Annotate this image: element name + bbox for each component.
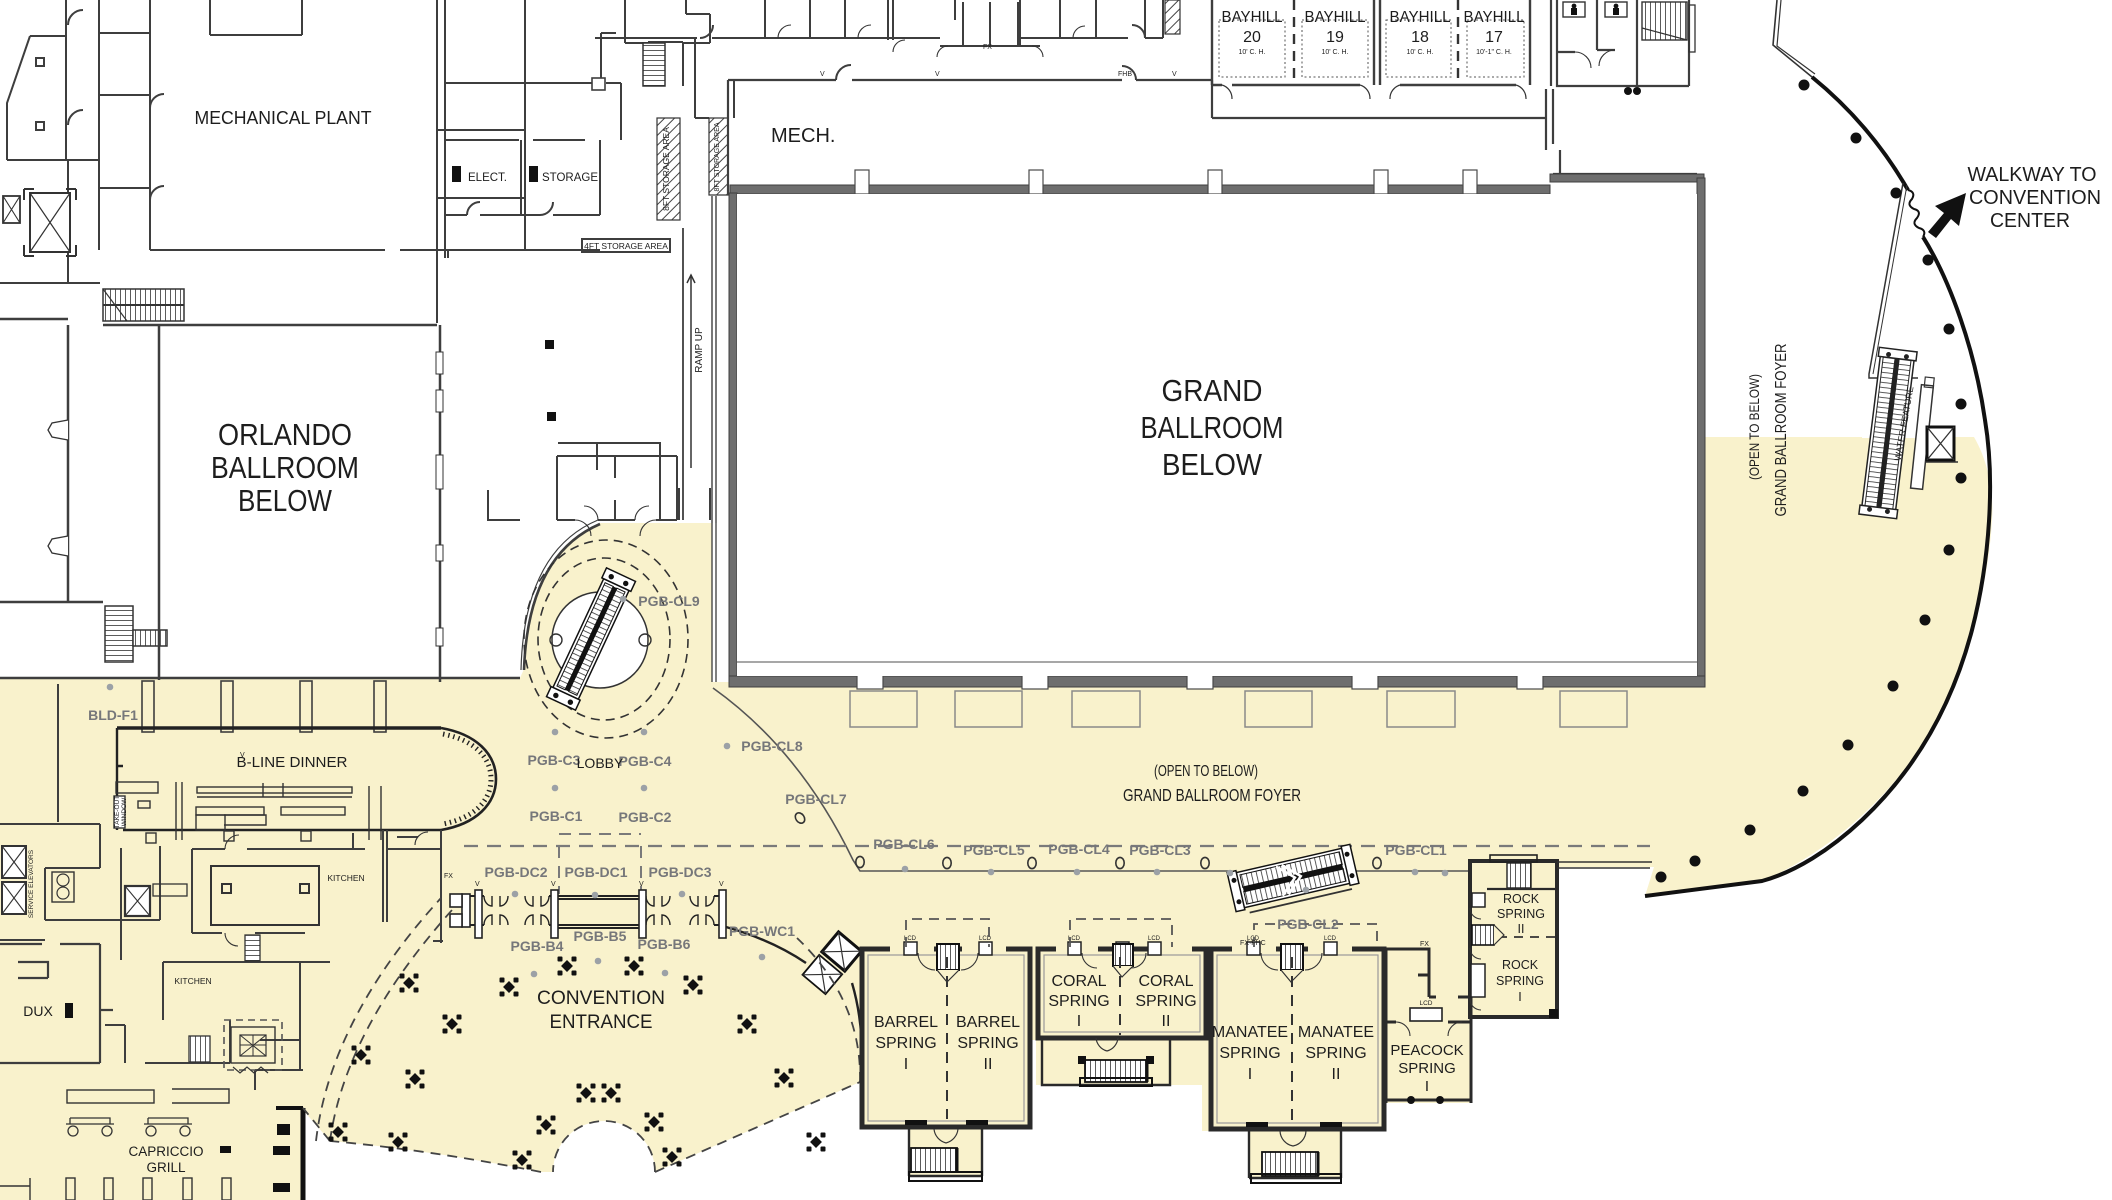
svg-text:WINDOW: WINDOW xyxy=(121,797,128,826)
svg-text:PGB-DC3: PGB-DC3 xyxy=(648,864,711,880)
svg-text:FX: FX xyxy=(1420,941,1429,948)
svg-text:GRAND BALLROOM FOYER: GRAND BALLROOM FOYER xyxy=(1773,344,1790,517)
svg-text:FX: FX xyxy=(444,873,453,880)
svg-text:GRAND BALLROOM FOYER: GRAND BALLROOM FOYER xyxy=(1123,785,1301,805)
svg-text:PGB-CL7: PGB-CL7 xyxy=(785,791,847,807)
svg-text:V: V xyxy=(1172,71,1177,78)
svg-text:SPRING: SPRING xyxy=(1305,1045,1366,1062)
svg-text:PGB-WC1: PGB-WC1 xyxy=(729,923,795,939)
svg-text:I: I xyxy=(1248,1066,1252,1083)
svg-text:MANATEE: MANATEE xyxy=(1298,1024,1374,1041)
svg-text:10' C. H.: 10' C. H. xyxy=(1406,49,1433,56)
svg-text:SPRING: SPRING xyxy=(875,1035,936,1052)
svg-text:PGB-CL2: PGB-CL2 xyxy=(1277,916,1339,932)
svg-text:CONVENTION: CONVENTION xyxy=(1969,187,2101,209)
svg-text:CORAL: CORAL xyxy=(1051,973,1106,990)
svg-text:BARREL: BARREL xyxy=(874,1014,938,1031)
svg-text:LCD: LCD xyxy=(1419,1000,1432,1007)
svg-text:PGB-CL9: PGB-CL9 xyxy=(638,593,700,609)
svg-text:BALLROOM: BALLROOM xyxy=(1141,410,1284,445)
svg-text:MANATEE: MANATEE xyxy=(1212,1024,1288,1041)
svg-text:(OPEN TO BELOW): (OPEN TO BELOW) xyxy=(1154,763,1258,780)
svg-text:CENTER: CENTER xyxy=(1990,210,2070,232)
svg-text:LCD: LCD xyxy=(1148,936,1161,942)
svg-text:II: II xyxy=(1162,1013,1171,1030)
svg-text:V: V xyxy=(551,881,556,888)
svg-text:PGB-CL6: PGB-CL6 xyxy=(873,836,935,852)
svg-text:LOBBY: LOBBY xyxy=(577,755,624,771)
svg-text:CORAL: CORAL xyxy=(1138,973,1193,990)
svg-text:ROCK: ROCK xyxy=(1502,958,1539,972)
svg-text:SPRING: SPRING xyxy=(1135,993,1196,1010)
svg-text:SPRING: SPRING xyxy=(1496,974,1544,988)
svg-text:(OPEN TO BELOW): (OPEN TO BELOW) xyxy=(1746,374,1762,480)
svg-text:CAPRICCIO: CAPRICCIO xyxy=(128,1144,203,1159)
svg-text:V: V xyxy=(719,881,724,888)
svg-text:17: 17 xyxy=(1485,29,1503,46)
svg-text:PGB-DC2: PGB-DC2 xyxy=(484,864,547,880)
svg-text:10'-1" C. H.: 10'-1" C. H. xyxy=(1476,49,1512,56)
svg-text:RAMP UP: RAMP UP xyxy=(694,327,705,373)
svg-text:BAYHILL: BAYHILL xyxy=(1305,9,1366,26)
svg-text:V: V xyxy=(240,752,245,759)
svg-text:BAYHILL: BAYHILL xyxy=(1390,9,1451,26)
svg-text:20: 20 xyxy=(1243,29,1261,46)
svg-text:PGB-CL5: PGB-CL5 xyxy=(963,842,1025,858)
svg-text:II: II xyxy=(1518,922,1525,936)
svg-text:PGB-B4: PGB-B4 xyxy=(511,938,564,954)
svg-text:I: I xyxy=(904,1056,908,1073)
svg-text:ENTRANCE: ENTRANCE xyxy=(550,1012,653,1033)
svg-text:DUX: DUX xyxy=(23,1003,53,1019)
svg-text:ORLANDO: ORLANDO xyxy=(218,417,352,452)
svg-text:18: 18 xyxy=(1411,29,1429,46)
svg-text:II: II xyxy=(1332,1066,1341,1083)
svg-text:PGB-CL1: PGB-CL1 xyxy=(1385,842,1447,858)
svg-text:I: I xyxy=(1425,1078,1429,1095)
svg-text:PEACOCK: PEACOCK xyxy=(1390,1042,1463,1059)
svg-text:SPRING: SPRING xyxy=(1219,1045,1280,1062)
svg-text:19: 19 xyxy=(1326,29,1344,46)
svg-text:V: V xyxy=(475,881,480,888)
svg-text:8FT STORAGE AREA: 8FT STORAGE AREA xyxy=(714,122,721,191)
svg-text:BELOW: BELOW xyxy=(238,483,333,518)
svg-text:SPRING: SPRING xyxy=(1048,993,1109,1010)
svg-text:TAKE-OUT: TAKE-OUT xyxy=(114,796,121,828)
svg-text:10' C. H.: 10' C. H. xyxy=(1238,49,1265,56)
svg-text:V: V xyxy=(820,71,825,78)
svg-text:BALLROOM: BALLROOM xyxy=(211,450,359,485)
svg-text:PGB-C4: PGB-C4 xyxy=(619,753,672,769)
svg-text:KITCHEN: KITCHEN xyxy=(174,976,211,986)
svg-text:V: V xyxy=(935,71,940,78)
svg-text:PGB-C3: PGB-C3 xyxy=(528,752,581,768)
svg-text:B-LINE DINNER: B-LINE DINNER xyxy=(237,754,348,771)
svg-text:MECH.: MECH. xyxy=(771,125,835,147)
svg-text:PGB-B5: PGB-B5 xyxy=(574,928,627,944)
svg-text:GRAND: GRAND xyxy=(1162,373,1263,408)
svg-text:V: V xyxy=(639,881,644,888)
svg-text:FX: FX xyxy=(983,44,992,51)
svg-text:PGB-CL3: PGB-CL3 xyxy=(1129,842,1191,858)
svg-text:ROCK: ROCK xyxy=(1503,892,1540,906)
svg-text:BELOW: BELOW xyxy=(1162,447,1263,482)
svg-text:PGB-CL4: PGB-CL4 xyxy=(1048,841,1110,857)
svg-text:CONVENTION: CONVENTION xyxy=(537,988,665,1009)
svg-text:PGB-C2: PGB-C2 xyxy=(619,809,672,825)
svg-text:STORAGE: STORAGE xyxy=(542,172,598,184)
svg-text:SPRING: SPRING xyxy=(1398,1060,1456,1077)
svg-text:II: II xyxy=(984,1056,993,1073)
svg-text:PGB-DC1: PGB-DC1 xyxy=(564,864,627,880)
svg-text:SPRING: SPRING xyxy=(957,1035,1018,1052)
svg-text:I: I xyxy=(1077,1013,1081,1030)
svg-text:PGB-CL8: PGB-CL8 xyxy=(741,738,803,754)
svg-text:LCD: LCD xyxy=(1324,936,1337,942)
svg-text:WALKWAY TO: WALKWAY TO xyxy=(1968,164,2097,186)
svg-text:FHB: FHB xyxy=(1118,71,1132,78)
svg-text:10' C. H.: 10' C. H. xyxy=(1321,49,1348,56)
svg-text:PGB-C1: PGB-C1 xyxy=(530,808,583,824)
svg-text:SPRING: SPRING xyxy=(1497,907,1545,921)
svg-text:ELECT.: ELECT. xyxy=(468,172,507,184)
svg-text:BAYHILL: BAYHILL xyxy=(1464,9,1525,26)
svg-text:BLD-F1: BLD-F1 xyxy=(88,707,138,723)
svg-text:FX·FHC: FX·FHC xyxy=(1240,940,1266,947)
svg-text:PGB-B6: PGB-B6 xyxy=(638,936,691,952)
svg-text:KITCHEN: KITCHEN xyxy=(327,873,364,883)
svg-text:I: I xyxy=(1518,990,1521,1004)
svg-text:GRILL: GRILL xyxy=(146,1160,186,1175)
svg-text:BARREL: BARREL xyxy=(956,1014,1020,1031)
svg-text:SERVICE ELEVATORS: SERVICE ELEVATORS xyxy=(28,849,35,918)
svg-text:MECHANICAL PLANT: MECHANICAL PLANT xyxy=(195,108,372,128)
svg-text:BAYHILL: BAYHILL xyxy=(1222,9,1283,26)
svg-text:8FT STORAGE AREA: 8FT STORAGE AREA xyxy=(661,127,671,211)
svg-text:4FT STORAGE AREA: 4FT STORAGE AREA xyxy=(584,241,668,251)
